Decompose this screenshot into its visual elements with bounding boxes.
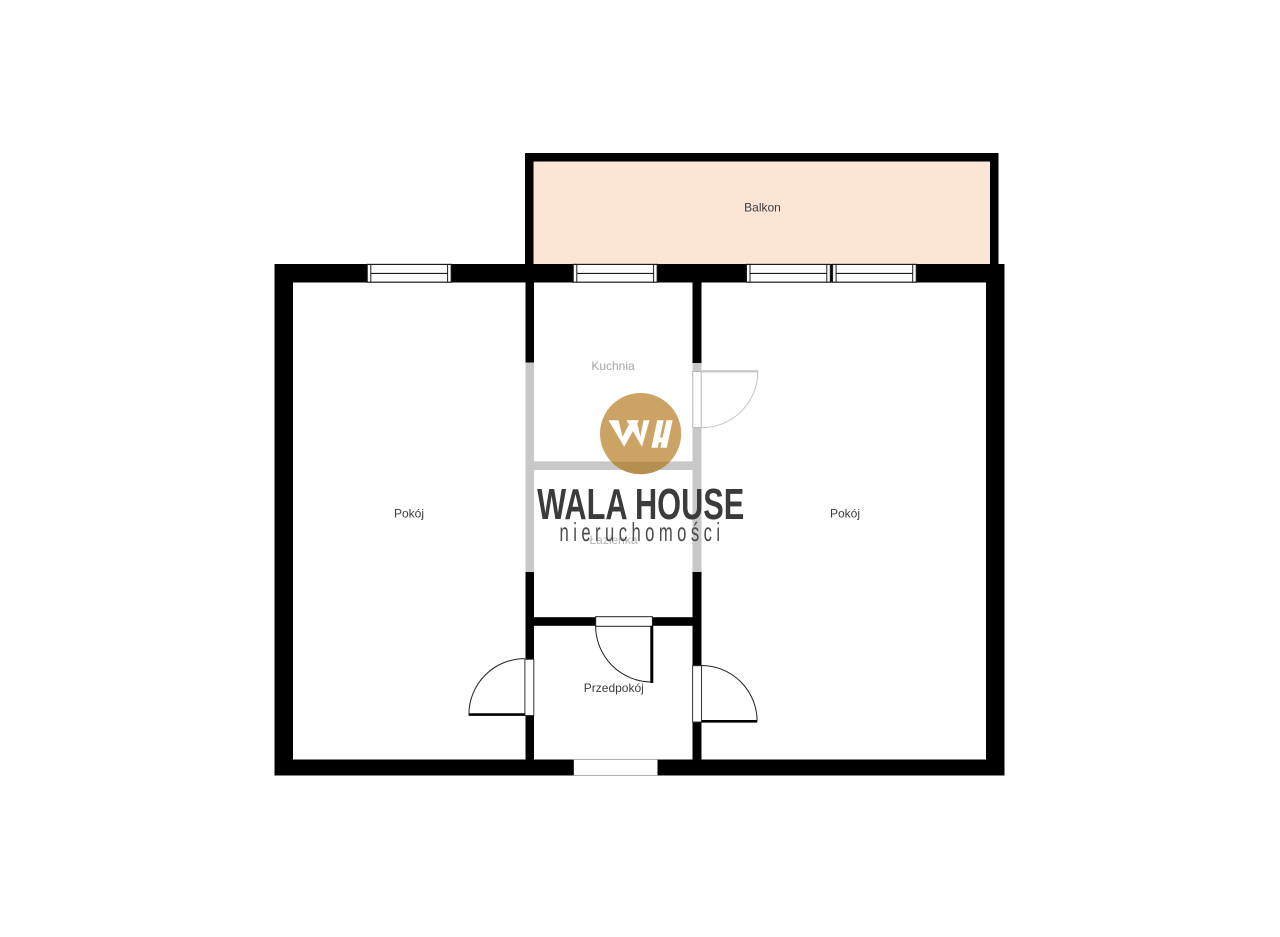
svg-text:Kuchnia: Kuchnia (591, 359, 635, 373)
svg-text:Pokój: Pokój (394, 507, 424, 521)
svg-text:Balkon: Balkon (744, 201, 781, 215)
svg-text:Przedpokój: Przedpokój (584, 681, 644, 695)
svg-text:nieruchomości: nieruchomości (560, 517, 725, 547)
svg-text:Pokój: Pokój (830, 507, 860, 521)
